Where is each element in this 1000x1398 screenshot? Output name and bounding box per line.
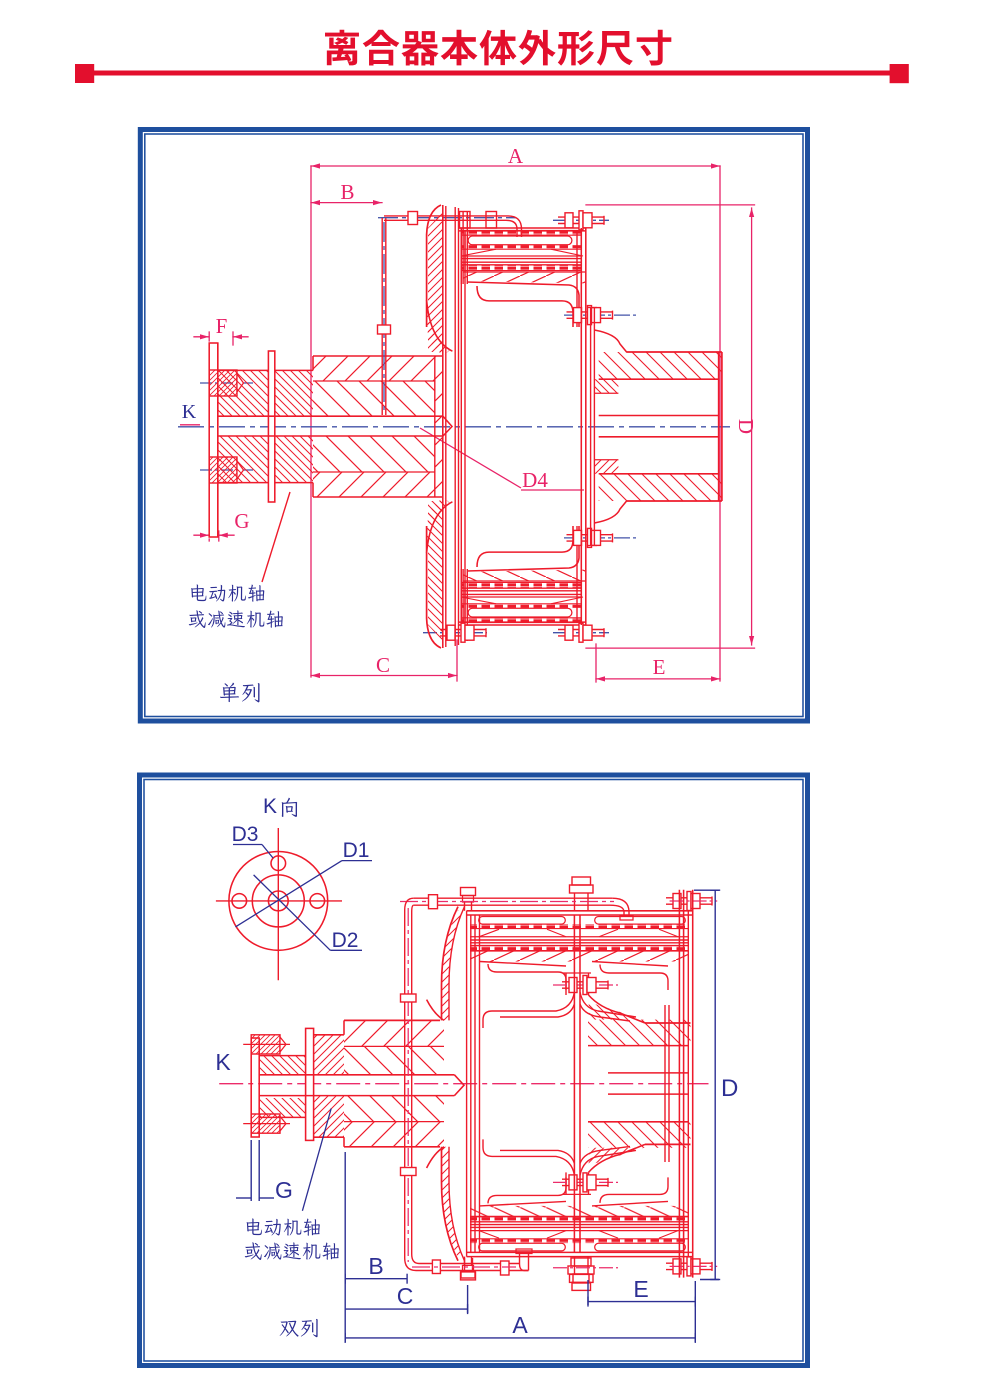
svg-text:A: A	[508, 144, 524, 168]
svg-text:E: E	[633, 1276, 648, 1302]
svg-text:G: G	[275, 1177, 293, 1203]
svg-text:K: K	[182, 401, 197, 423]
svg-text:C: C	[397, 1283, 414, 1309]
svg-text:A: A	[512, 1312, 528, 1338]
svg-text:D3: D3	[232, 823, 259, 846]
svg-text:E: E	[653, 655, 666, 679]
svg-text:D: D	[721, 1075, 738, 1102]
svg-text:F: F	[216, 314, 228, 338]
svg-text:D4: D4	[522, 468, 548, 492]
svg-text:D1: D1	[343, 839, 370, 862]
svg-text:B: B	[340, 180, 354, 204]
svg-text:G: G	[234, 509, 249, 533]
svg-text:B: B	[368, 1253, 383, 1279]
svg-text:K: K	[215, 1049, 231, 1075]
svg-text:D2: D2	[332, 929, 359, 952]
svg-text:D: D	[734, 419, 758, 434]
svg-text:C: C	[376, 653, 390, 677]
svg-text:K: K	[263, 795, 277, 818]
